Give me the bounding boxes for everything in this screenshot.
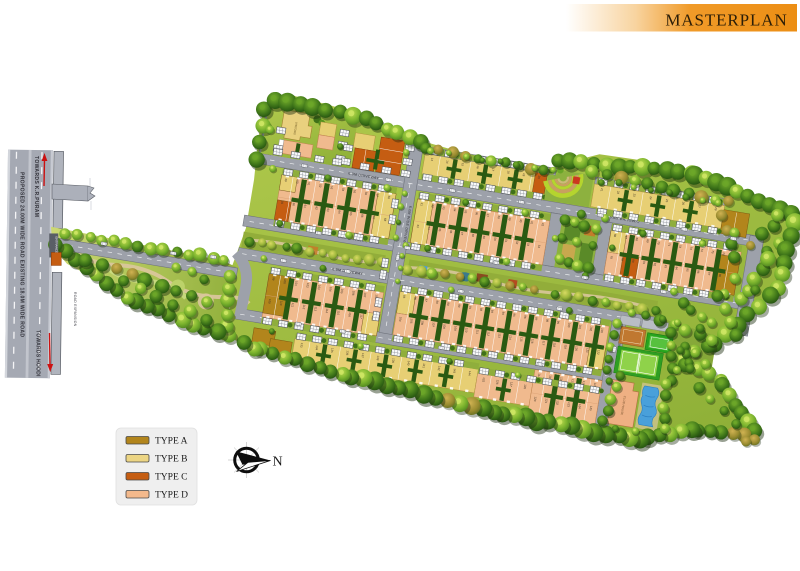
svg-text:TYPE A: TYPE A xyxy=(155,437,188,447)
svg-text:ROAD EXPANSION: ROAD EXPANSION xyxy=(73,292,77,327)
svg-text:TYPE B: TYPE B xyxy=(155,455,187,465)
svg-text:TOWARDS K.R.PURAM: TOWARDS K.R.PURAM xyxy=(33,156,39,217)
svg-text:N: N xyxy=(273,455,283,470)
svg-text:TYPE D: TYPE D xyxy=(155,491,188,501)
svg-text:ENTRANCE: ENTRANCE xyxy=(54,236,58,253)
svg-text:TOWARDS HOODI: TOWARDS HOODI xyxy=(35,330,41,377)
svg-text:PROPOSED 24.00M WIDE ROAD EXIS: PROPOSED 24.00M WIDE ROAD EXISTING 18.0M… xyxy=(19,172,25,337)
svg-text:TYPE C: TYPE C xyxy=(155,473,187,483)
svg-text:MASTERPLAN: MASTERPLAN xyxy=(665,11,787,30)
